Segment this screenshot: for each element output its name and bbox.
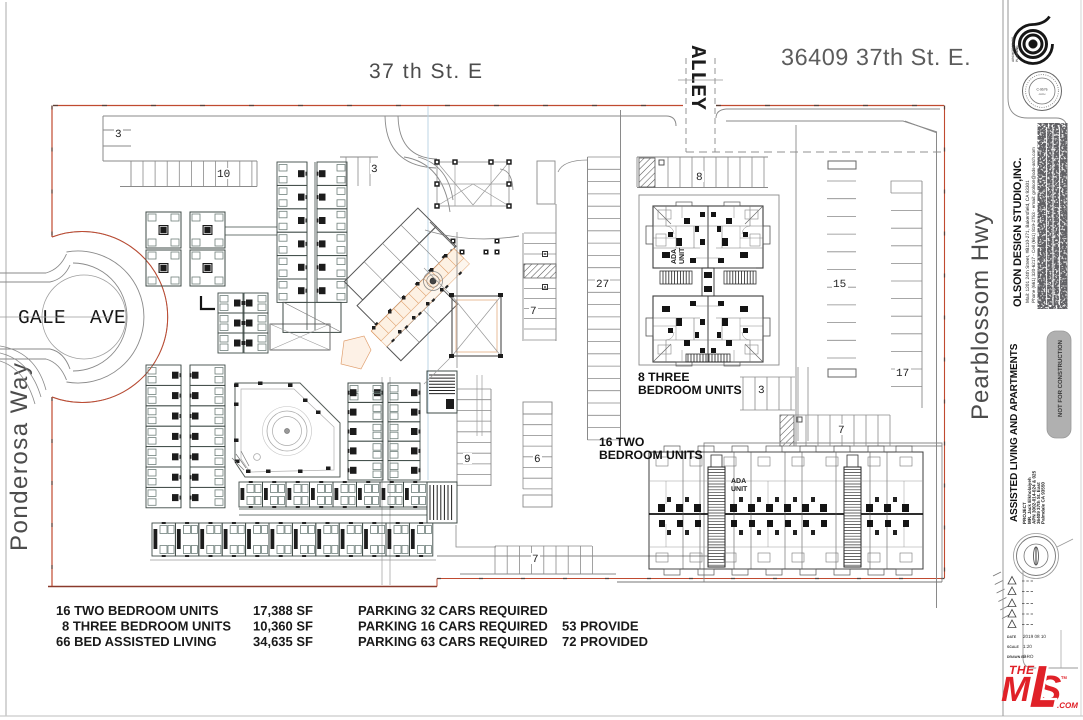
svg-text:SCALE: SCALE xyxy=(1007,645,1020,649)
svg-text:ASSISTED LIVING AND APARTMENTS: ASSISTED LIVING AND APARTMENTS xyxy=(1009,343,1020,522)
svg-text:OLSON DESIGN STUDIO,INC.: OLSON DESIGN STUDIO,INC. xyxy=(1012,158,1024,307)
svg-text:37 th St. E: 37 th St. E xyxy=(369,60,484,83)
svg-text:15: 15 xyxy=(833,279,846,291)
svg-text:Pearblossom Hwy: Pearblossom Hwy xyxy=(967,212,994,420)
svg-text:72 PROVIDED: 72 PROVIDED xyxy=(562,634,648,649)
svg-text:NOT FOR CONSTRUCTION: NOT FOR CONSTRUCTION xyxy=(1057,340,1064,417)
svg-text:ADA: ADA xyxy=(731,478,746,485)
svg-text:6: 6 xyxy=(534,454,541,466)
svg-text:DATE: DATE xyxy=(1007,635,1017,639)
svg-text:UNIT: UNIT xyxy=(731,486,748,493)
svg-text:GRO: GRO xyxy=(1023,654,1034,659)
svg-text:17,388 SF: 17,388 SF xyxy=(253,603,313,618)
svg-text:PARKING 32 CARS REQUIRED: PARKING 32 CARS REQUIRED xyxy=(358,603,548,618)
svg-text:GALE AVE: GALE AVE xyxy=(18,307,126,329)
svg-text:PLANNING: PLANNING xyxy=(1015,45,1019,62)
svg-text:BEDROOM UNITS: BEDROOM UNITS xyxy=(638,383,742,397)
svg-text:.COM: .COM xyxy=(1057,701,1078,710)
svg-text:10,360 SF: 10,360 SF xyxy=(253,619,313,634)
svg-text:8 THREE BEDROOM UNITS: 8 THREE BEDROOM UNITS xyxy=(62,619,231,634)
svg-text:7: 7 xyxy=(838,425,845,437)
svg-text:ARCH: ARCH xyxy=(1039,93,1046,96)
svg-text:27: 27 xyxy=(596,279,609,291)
svg-text:34,635 SF: 34,635 SF xyxy=(253,634,313,649)
svg-text:3: 3 xyxy=(758,385,765,397)
svg-text:UNIT: UNIT xyxy=(679,247,686,264)
svg-text:C-9576: C-9576 xyxy=(1036,88,1047,92)
svg-text:BEDROOM UNITS: BEDROOM UNITS xyxy=(599,448,703,462)
svg-text:16 TWO: 16 TWO xyxy=(599,435,644,449)
svg-text:8 THREE: 8 THREE xyxy=(638,370,689,384)
svg-text:PARKING 16 CARS REQUIRED: PARKING 16 CARS REQUIRED xyxy=(358,619,548,634)
svg-text:ADA: ADA xyxy=(671,249,678,264)
svg-text:3: 3 xyxy=(115,129,122,141)
svg-text:7: 7 xyxy=(530,306,537,318)
svg-text:Phone (661) 320-6217 - Cell (6: Phone (661) 320-6217 - Cell (661) 819-27… xyxy=(1031,147,1036,303)
svg-text:53 PROVIDE: 53 PROVIDE xyxy=(562,619,639,634)
svg-text:8: 8 xyxy=(696,172,703,184)
svg-text:7: 7 xyxy=(532,554,539,566)
svg-text:2019 08 10: 2019 08 10 xyxy=(1023,634,1046,639)
svg-text:3: 3 xyxy=(371,164,378,176)
svg-text:Ponderosa Way: Ponderosa Way xyxy=(6,362,33,551)
svg-text:1:20: 1:20 xyxy=(1023,644,1032,649)
svg-text:M: M xyxy=(1001,670,1031,709)
svg-text:17: 17 xyxy=(896,368,909,380)
svg-text:PARKING 63 CARS REQUIRED: PARKING 63 CARS REQUIRED xyxy=(358,634,548,649)
svg-text:Palmdale CA 93550: Palmdale CA 93550 xyxy=(1041,482,1046,524)
svg-text:TM: TM xyxy=(1061,675,1067,680)
svg-text:10: 10 xyxy=(217,169,230,181)
svg-text:36409 37th St. E.: 36409 37th St. E. xyxy=(781,44,971,70)
svg-text:66 BED ASSISTED LIVING: 66 BED ASSISTED LIVING xyxy=(56,634,217,649)
svg-text:ALLEY: ALLEY xyxy=(685,46,708,111)
svg-text:16 TWO BEDROOM UNITS: 16 TWO BEDROOM UNITS xyxy=(56,603,219,618)
svg-text:9: 9 xyxy=(464,454,471,466)
